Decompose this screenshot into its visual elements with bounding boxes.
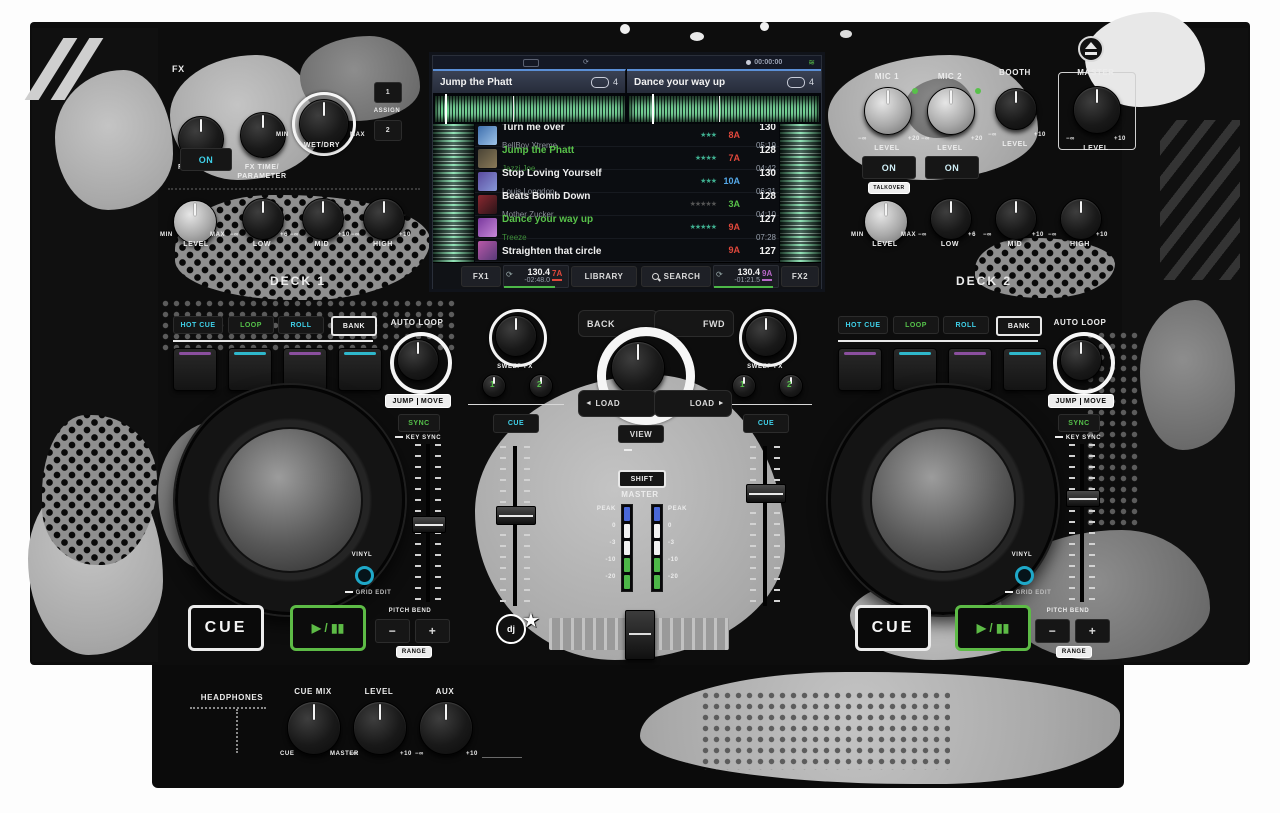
deck2-pitch-fader-cap[interactable]: [1066, 490, 1100, 507]
master-level-knob[interactable]: [1073, 86, 1121, 134]
cue-mix-knob[interactable]: [287, 701, 341, 755]
album-art: [478, 126, 497, 145]
high-label: HIGH: [341, 241, 425, 248]
bank-button[interactable]: BANK: [331, 316, 377, 336]
performance-pad-3[interactable]: [948, 348, 992, 391]
wifi-icon: ≋: [808, 58, 815, 67]
record-icon: [746, 60, 751, 65]
deck2-cue-button[interactable]: CUE: [855, 605, 931, 651]
performance-pad-4[interactable]: [338, 348, 382, 391]
sweep-fx-2-num: 2: [537, 380, 542, 389]
talkover-label: TALKOVER: [868, 182, 910, 194]
divider: [468, 404, 564, 405]
mic2-on-button[interactable]: ON: [925, 156, 979, 179]
pad-divider: [173, 340, 373, 342]
high-max: +10: [1096, 232, 1108, 238]
ch1-sweep-fx-label: SWEEP FX: [473, 364, 557, 370]
auto-loop-knob[interactable]: [397, 339, 439, 381]
key-sync-label: KEY SYNC: [1046, 435, 1110, 441]
booth-level-label: LEVEL: [973, 141, 1057, 148]
load-left-button[interactable]: ◄ LOAD: [578, 390, 656, 417]
vu-scale: -3: [582, 540, 616, 546]
view-button[interactable]: VIEW: [618, 425, 664, 443]
divider: [482, 757, 522, 758]
fx-title: FX: [172, 64, 185, 74]
mid-min: −∞: [290, 232, 299, 238]
track-bpm: 128: [759, 191, 776, 202]
wetdry-min: MIN: [276, 132, 289, 138]
ch2-sweep-fx-knob[interactable]: [745, 315, 787, 357]
sync-button[interactable]: SYNC: [1058, 414, 1100, 432]
vu-scale: -10: [668, 557, 702, 563]
ch1-fader[interactable]: [500, 446, 530, 606]
low-min: −∞: [918, 232, 927, 238]
track-rating: ★★★★★: [682, 223, 716, 231]
fx-assign1-button[interactable]: 1: [374, 82, 402, 103]
high-min: −∞: [351, 232, 360, 238]
deck-b-title: Dance your way up: [634, 77, 787, 88]
track-key: 3A: [716, 199, 740, 209]
master-label: MASTER: [1054, 68, 1138, 77]
album-art: [478, 218, 497, 237]
deck-b-playhead: [652, 94, 654, 124]
fx-assign2-button[interactable]: 2: [374, 120, 402, 141]
key-sync-label: KEY SYNC: [386, 435, 450, 441]
mic1-level-knob[interactable]: [864, 87, 912, 135]
track-bpm: 130: [759, 168, 776, 179]
level-min: MIN: [160, 232, 173, 238]
status-bar: ⟳ 00:00:00 ≋: [433, 56, 821, 69]
jump-move-label: JUMPMOVE: [1048, 394, 1114, 408]
jump-label: JUMP: [1055, 398, 1076, 405]
deck2-pitch-fader[interactable]: [1069, 444, 1095, 602]
deck2-mid-knob[interactable]: [995, 198, 1037, 240]
vinyl-button[interactable]: [355, 566, 374, 585]
performance-pad-2[interactable]: [893, 348, 937, 391]
jump-label: JUMP: [392, 398, 413, 405]
jump-move-label: JUMPMOVE: [385, 394, 451, 408]
fx-param-label: PARAMETER: [220, 173, 304, 180]
master-min: −∞: [1066, 136, 1075, 142]
vu-meter-left: [621, 504, 633, 592]
mic1-led: [912, 88, 918, 94]
high-max: +10: [399, 232, 411, 238]
vu-scale: -20: [582, 574, 616, 580]
vu-meter-right: [651, 504, 663, 592]
high-min: −∞: [1048, 232, 1057, 238]
dj-controller: FX FX SELECT FX TIME/ PARAMETER MIN MAX …: [0, 0, 1280, 813]
track-title: Dance your way up: [502, 214, 593, 225]
booth-max: +10: [1034, 132, 1046, 138]
assign-label: ASSIGN: [362, 108, 412, 114]
record-time: 00:00:00: [754, 59, 782, 66]
track-key: 9A: [716, 222, 740, 232]
track-key: 9A: [716, 245, 740, 255]
eject-button[interactable]: [1078, 36, 1104, 62]
roll-button[interactable]: ROLL: [278, 316, 324, 334]
deck-b-loop-length: 4: [809, 77, 814, 87]
track-rating: ★★★: [682, 177, 716, 185]
deck2-low-knob[interactable]: [930, 198, 972, 240]
splatter-decoration: [55, 70, 173, 210]
deck2-name: DECK 2: [942, 274, 1026, 288]
track-row[interactable]: Dance your way up Treeze ★★★★★ 9A 127 07…: [475, 216, 779, 239]
deck2-mid-section: HOT CUE LOOP ROLL BANK AUTO LOOP JUMPMOV…: [820, 294, 1122, 664]
ch2-sweep-fx-label: SWEEP FX: [723, 364, 807, 370]
track-title: Straighten that circle: [502, 246, 601, 257]
deck1-bpm: 130.4: [516, 267, 550, 277]
sweep-fx-2-num: 2: [787, 380, 792, 389]
pitch-bend-plus-button[interactable]: +: [415, 619, 450, 643]
deck-a-title: Jump the Phatt: [440, 77, 591, 88]
vu-scale: 0: [668, 523, 702, 529]
sweep-fx-1-num: 1: [490, 380, 495, 389]
display-screen: ⟳ 00:00:00 ≋ Jump the Phatt 4 Dance your…: [432, 55, 822, 289]
loop-status-icon: ⟳: [583, 58, 589, 66]
bank-button[interactable]: BANK: [996, 316, 1042, 336]
search-icon: [652, 273, 660, 281]
deck1-key: 7A: [552, 269, 562, 281]
fx-time-label: FX TIME/: [220, 164, 304, 171]
track-rating: ★★★: [682, 131, 716, 139]
ch1-sweep-fx-knob[interactable]: [495, 315, 537, 357]
low-max: +6: [280, 232, 288, 238]
track-title: Beats Bomb Down: [502, 191, 590, 202]
loop-icon: [591, 77, 609, 88]
pad-divider: [838, 340, 1038, 342]
track-key: 8A: [716, 130, 740, 140]
deck1-pitch-fader-cap[interactable]: [412, 516, 446, 533]
level-max: MAX: [210, 232, 225, 238]
track-bpm: 130: [759, 124, 776, 133]
track-row[interactable]: Straighten that circle 9A 127: [475, 239, 779, 262]
mic1-on-button[interactable]: ON: [862, 156, 916, 179]
splatter-decoration: [620, 24, 630, 34]
auto-loop-knob[interactable]: [1060, 339, 1102, 381]
deck-a-playhead: [445, 94, 447, 124]
fx1-button[interactable]: FX1: [461, 266, 501, 287]
headphones-dotted-line: [236, 709, 238, 753]
pitch-bend-label: PITCH BEND: [1026, 608, 1110, 614]
aux-min: −∞: [415, 751, 424, 757]
browse-knob[interactable]: [611, 341, 665, 395]
vinyl-label: VINYL: [320, 552, 404, 558]
deck1-low-knob[interactable]: [242, 198, 284, 240]
wetdry-label: WET/DRY: [280, 142, 364, 149]
album-art: [478, 172, 497, 191]
sync-button[interactable]: SYNC: [398, 414, 440, 432]
mic1-min: −∞: [858, 136, 867, 142]
level-max: MAX: [901, 232, 916, 238]
mid-max: +10: [338, 232, 350, 238]
pitch-bend-minus-button[interactable]: −: [375, 619, 410, 643]
deck1-mid-section: HOT CUE LOOP ROLL BANK AUTO LOOP JUMPMOV…: [158, 294, 458, 664]
wetdry-max: MAX: [350, 132, 365, 138]
phones-level-knob[interactable]: [353, 701, 407, 755]
loop-button[interactable]: LOOP: [228, 316, 274, 334]
star-logo-icon: ★: [522, 608, 540, 633]
loop-icon: [787, 77, 805, 88]
performance-pad-4[interactable]: [1003, 348, 1047, 391]
booth-level-knob[interactable]: [995, 88, 1037, 130]
auto-loop-label: AUTO LOOP: [375, 318, 459, 327]
deck1-progress: [504, 286, 555, 288]
track-list: Turn me over BellBoy Xtreme ★★★ 8A 130 0…: [475, 124, 779, 262]
stripe-decoration: [1160, 120, 1240, 280]
master-level-label: LEVEL: [1054, 145, 1138, 152]
deck1-cue-button[interactable]: CUE: [188, 605, 264, 651]
ch2-fader-cap[interactable]: [746, 484, 786, 503]
deck1-top-section: FX FX SELECT FX TIME/ PARAMETER MIN MAX …: [158, 28, 432, 294]
deck2-play-button[interactable]: ▶ / ▮▮: [955, 605, 1031, 651]
phones-level-min: −∞: [349, 751, 358, 757]
move-label: MOVE: [421, 398, 444, 405]
sweep-fx-1-num: 1: [740, 380, 745, 389]
load-right-button[interactable]: LOAD ►: [654, 390, 732, 417]
album-art: [478, 149, 497, 168]
range-label: RANGE: [396, 646, 432, 658]
sync-icon: ⟳: [506, 270, 513, 279]
deck2-progress: [714, 286, 773, 288]
sync-icon: ⟳: [716, 270, 723, 279]
fx2-button[interactable]: FX2: [781, 266, 819, 287]
load-right-label: LOAD: [690, 399, 715, 408]
mid-min: −∞: [983, 232, 992, 238]
vu-scale: 0: [582, 523, 616, 529]
mic1-max: +20: [908, 136, 920, 142]
master-meter-label: MASTER: [598, 490, 682, 499]
vinyl-button[interactable]: [1015, 566, 1034, 585]
peak-label-right: PEAK: [668, 506, 702, 512]
battery-icon: [523, 59, 539, 67]
range-label: RANGE: [1056, 646, 1092, 658]
front-panel-section: HEADPHONES CUE MIX CUE MASTER LEVEL −∞ +…: [152, 665, 1124, 788]
deck-a-cue-marker: [513, 96, 514, 122]
master-max: +10: [1114, 136, 1126, 142]
mic2-level-knob[interactable]: [927, 87, 975, 135]
deck2-remaining: -01:21.5: [724, 277, 760, 284]
deck1-play-button[interactable]: ▶ / ▮▮: [290, 605, 366, 651]
deck1-remaining: -02:48.0: [514, 277, 550, 284]
ch2-cue-button[interactable]: CUE: [743, 414, 789, 433]
phones-level-max: +10: [400, 751, 412, 757]
eject-icon-bar: [1085, 52, 1097, 55]
move-label: MOVE: [1084, 398, 1107, 405]
arrow-left-icon: ◄: [585, 400, 592, 407]
ch1-fader-cap[interactable]: [496, 506, 536, 525]
vinyl-label: VINYL: [980, 552, 1064, 558]
album-art: [478, 241, 497, 260]
loop-button[interactable]: LOOP: [893, 316, 939, 334]
search-button[interactable]: SEARCH: [641, 266, 711, 287]
track-title: Turn me over: [502, 124, 565, 133]
auto-loop-label: AUTO LOOP: [1038, 318, 1122, 327]
deck-a-vertical-waveform[interactable]: [433, 124, 474, 262]
deck-b-header[interactable]: Dance your way up 4: [627, 69, 821, 93]
grid-edit-label: GRID EDIT: [986, 590, 1070, 596]
pitch-bend-minus-button[interactable]: −: [1035, 619, 1070, 643]
track-bpm: 127: [759, 246, 776, 257]
ch2-fader[interactable]: [750, 446, 780, 606]
deck2-bpm: 130.4: [726, 267, 760, 277]
deck2-status[interactable]: ⟳ 130.4 -01:21.5 9A: [713, 265, 779, 288]
library-button[interactable]: LIBRARY: [571, 266, 637, 287]
deck-b-cue-marker: [719, 96, 720, 122]
deck2-top-section: MIC 1 −∞ +20 LEVEL ON TALKOVER MIC 2 −∞ …: [820, 28, 1122, 294]
search-label: SEARCH: [664, 272, 701, 281]
track-title: Jump the Phatt: [502, 145, 574, 156]
mic2-min: −∞: [921, 136, 930, 142]
high-label: HIGH: [1038, 241, 1122, 248]
mic2-led: [975, 88, 981, 94]
level-min: MIN: [851, 232, 864, 238]
hot-cue-button[interactable]: HOT CUE: [838, 316, 888, 334]
roll-button[interactable]: ROLL: [943, 316, 989, 334]
hot-cue-button[interactable]: HOT CUE: [173, 316, 223, 334]
performance-pad-1[interactable]: [838, 348, 882, 391]
arrow-right-icon: ►: [718, 400, 725, 407]
deck-a-overview-waveform[interactable]: [435, 96, 625, 122]
track-title: Stop Loving Yourself: [502, 168, 602, 179]
aux-max: +10: [466, 751, 478, 757]
grid-edit-label: GRID EDIT: [326, 590, 410, 596]
splatter-decoration: [1140, 300, 1235, 450]
performance-pad-2[interactable]: [228, 348, 272, 391]
pitch-bend-label: PITCH BEND: [368, 608, 452, 614]
track-key: 10A: [716, 176, 740, 186]
mid-max: +10: [1032, 232, 1044, 238]
screen-footer: FX1 ⟳ 130.4 -02:48.0 7A LIBRARY SEARCH ⟳…: [433, 262, 821, 289]
pitch-bend-plus-button[interactable]: +: [1075, 619, 1110, 643]
track-rating: ★★★★: [682, 154, 716, 162]
track-rating: ★★★★★: [682, 200, 716, 208]
peak-label-left: PEAK: [582, 506, 616, 512]
divider: [168, 188, 420, 190]
deck1-name: DECK 1: [256, 274, 340, 288]
mixer-section: SWEEP FX 1 2 CUE SWEEP FX 1 2 CUE BACK F…: [458, 294, 820, 664]
deck1-status[interactable]: ⟳ 130.4 -02:48.0 7A: [503, 265, 569, 288]
aux-label: AUX: [403, 687, 487, 696]
ch1-cue-button[interactable]: CUE: [493, 414, 539, 433]
eject-icon: [1085, 42, 1097, 49]
deck2-key: 9A: [762, 269, 772, 281]
track-bpm: 127: [759, 214, 776, 225]
track-bpm: 128: [759, 145, 776, 156]
booth-min: −∞: [988, 132, 997, 138]
vu-scale: -3: [668, 540, 702, 546]
menu-label: MENU: [608, 448, 672, 454]
vu-scale: -20: [668, 574, 702, 580]
splatter-decoration: [690, 32, 704, 41]
splatter-decoration: [760, 22, 769, 31]
deck-b-vertical-waveform[interactable]: [780, 124, 821, 262]
crossfader-cap[interactable]: [625, 610, 655, 660]
cue-mix-min: CUE: [280, 751, 294, 757]
low-max: +6: [968, 232, 976, 238]
track-key: 7A: [716, 153, 740, 163]
deck-a-loop-length: 4: [613, 77, 618, 87]
shift-button[interactable]: SHIFT: [618, 470, 666, 488]
booth-label: BOOTH: [973, 68, 1057, 77]
performance-pad-1[interactable]: [173, 348, 217, 391]
album-art: [478, 195, 497, 214]
deck-a-header[interactable]: Jump the Phatt 4: [433, 69, 626, 93]
load-left-label: LOAD: [595, 399, 620, 408]
vu-scale: -10: [582, 557, 616, 563]
low-min: −∞: [230, 232, 239, 238]
aux-knob[interactable]: [419, 701, 473, 755]
fx-on-button[interactable]: ON: [180, 148, 232, 171]
headphones-dotted-line: [190, 707, 266, 709]
deck-b-overview-waveform[interactable]: [629, 96, 819, 122]
